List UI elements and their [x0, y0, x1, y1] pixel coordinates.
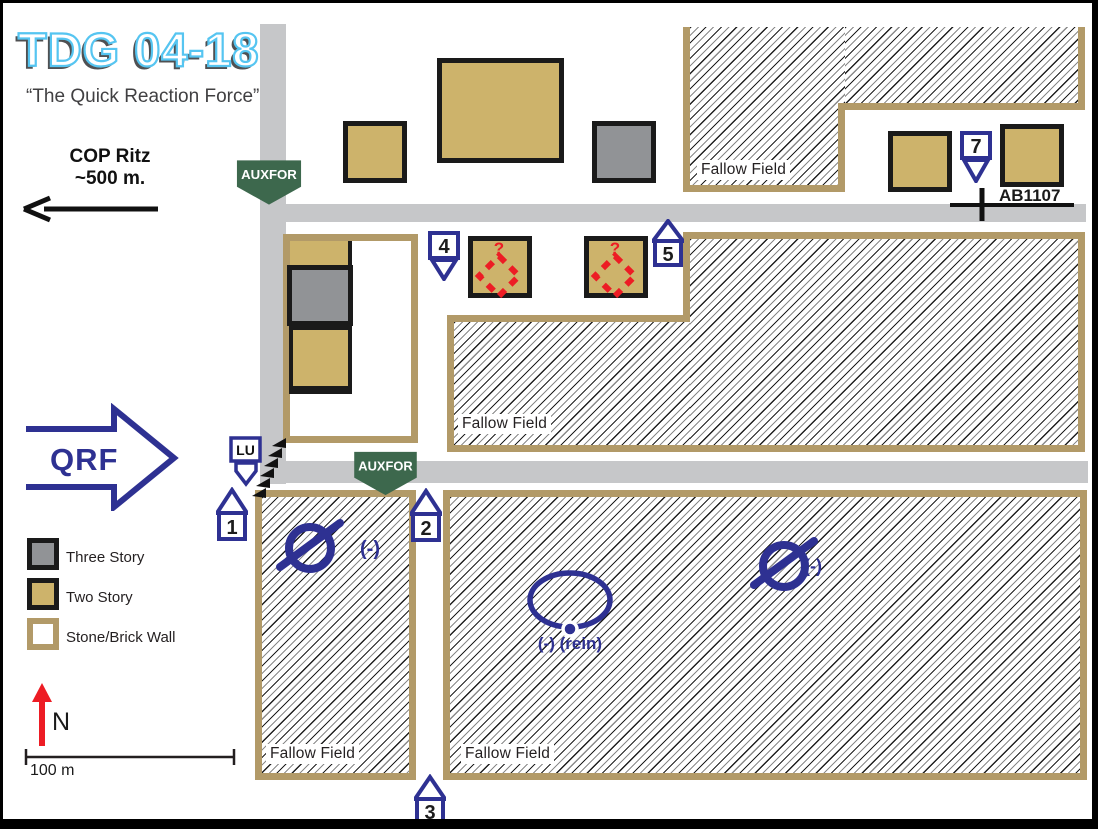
suspected-enemy-icon: ? [584, 234, 648, 300]
legend-label-three-story: Three Story [66, 549, 144, 566]
field-border-patch [838, 103, 845, 192]
route-marker-7-label: 7 [970, 136, 981, 158]
north-label: N [52, 708, 70, 737]
compound-building-three-story [287, 265, 353, 326]
route-marker-2-label: 2 [420, 518, 431, 540]
cop-direction-arrow-icon [18, 194, 168, 224]
field-border-patch [683, 232, 690, 322]
frame-bottom [0, 819, 1098, 829]
building-two-story-large [437, 58, 564, 163]
lu-marker: LU [229, 436, 263, 488]
route-marker-5: 5 [652, 219, 684, 267]
route-marker-7: 7 [960, 131, 992, 183]
route-marker-2: 2 [410, 488, 442, 543]
unit-crossed-circle-icon-left [272, 515, 348, 581]
unit-oval-modifier: (-) (rein) [538, 634, 602, 653]
cop-ritz-line2: ~500 m. [40, 168, 180, 190]
legend-swatch-two-story [27, 578, 59, 610]
building-three-story [592, 121, 656, 183]
ab1107-label: AB1107 [999, 186, 1060, 206]
unit-oval-symbol: (-) (rein) [522, 565, 618, 657]
frame-top [0, 0, 1098, 3]
map-subtitle: “The Quick Reaction Force” [26, 86, 259, 108]
map-title: TDG 04-18 [18, 22, 259, 77]
qrf-arrow-icon: QRF [20, 403, 180, 511]
frame-left [0, 0, 3, 829]
field-label-middle: Fallow Field [458, 414, 551, 434]
building-two-story [1000, 124, 1064, 187]
tdg-map: Fallow Field Fallow Field Fallow Field F… [0, 0, 1098, 829]
legend-label-two-story: Two Story [66, 589, 133, 606]
auxfor-sign-bottom-label: AUXFOR [358, 458, 413, 473]
route-marker-5-label: 5 [662, 244, 673, 266]
auxfor-sign-top: AUXFOR [236, 158, 302, 208]
unit-left-modifier: (-) [360, 538, 380, 561]
compound-building-two-story [289, 326, 352, 394]
field-label-bottom-right: Fallow Field [461, 744, 554, 764]
legend-swatch-three-story [27, 538, 59, 570]
route-marker-4-label: 4 [438, 236, 450, 258]
cop-ritz-line1: COP Ritz [40, 146, 180, 168]
fallow-field-middle-ext [690, 232, 1085, 452]
fallow-field-top-right-ext [845, 27, 1085, 110]
legend-label-stone-wall: Stone/Brick Wall [66, 629, 175, 646]
suspected-enemy-icon: ? [468, 234, 532, 300]
lu-marker-label: LU [236, 442, 255, 458]
unit-right-modifier: (-) [804, 556, 822, 577]
qrf-label: QRF [50, 442, 118, 477]
route-marker-1-label: 1 [226, 517, 237, 539]
frame-right [1092, 0, 1098, 829]
legend-swatch-stone-wall [27, 618, 59, 650]
building-two-story [888, 131, 952, 192]
route-marker-1: 1 [216, 487, 248, 542]
field-label-top-right: Fallow Field [697, 160, 790, 180]
scale-label: 100 m [30, 762, 74, 780]
field-label-bottom-left: Fallow Field [266, 744, 359, 764]
route-marker-4: 4 [428, 231, 460, 281]
cop-ritz-label: COP Ritz ~500 m. [40, 146, 180, 190]
auxfor-sign-top-label: AUXFOR [241, 167, 297, 182]
building-two-story [343, 121, 407, 183]
